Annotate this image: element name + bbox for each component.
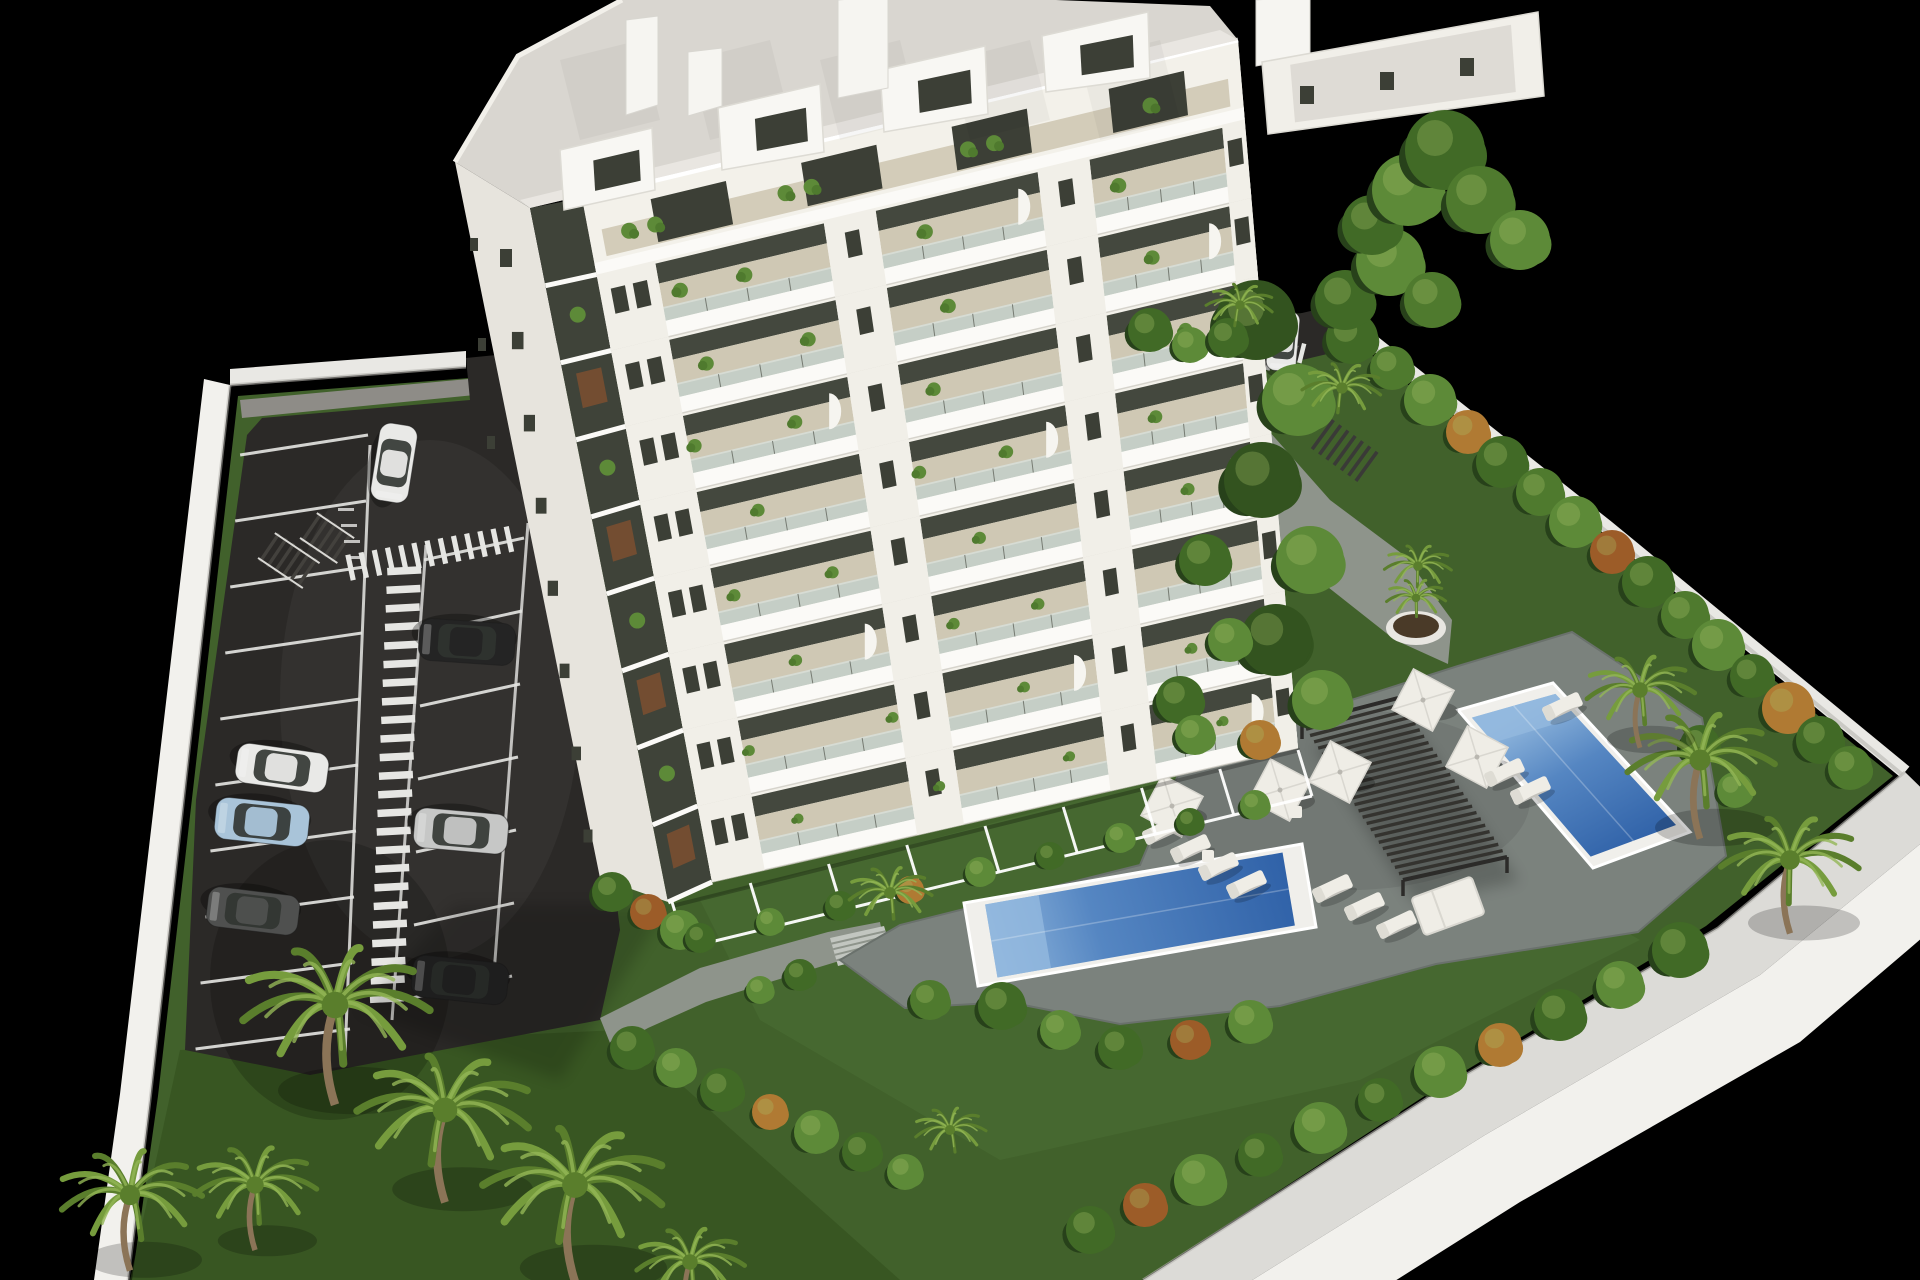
window [548, 581, 558, 596]
rooftop-stack [838, 0, 888, 98]
window [524, 415, 535, 432]
side-table [1202, 850, 1214, 862]
window [584, 830, 593, 843]
window [512, 332, 524, 349]
rooftop-stack [688, 48, 722, 116]
window [500, 249, 512, 267]
window [572, 747, 581, 761]
window [536, 498, 547, 514]
window [560, 664, 570, 678]
site-plan-svg [0, 0, 1920, 1280]
render-root [0, 0, 1920, 1280]
rooftop-stack [626, 16, 658, 115]
side-table [1290, 806, 1302, 818]
